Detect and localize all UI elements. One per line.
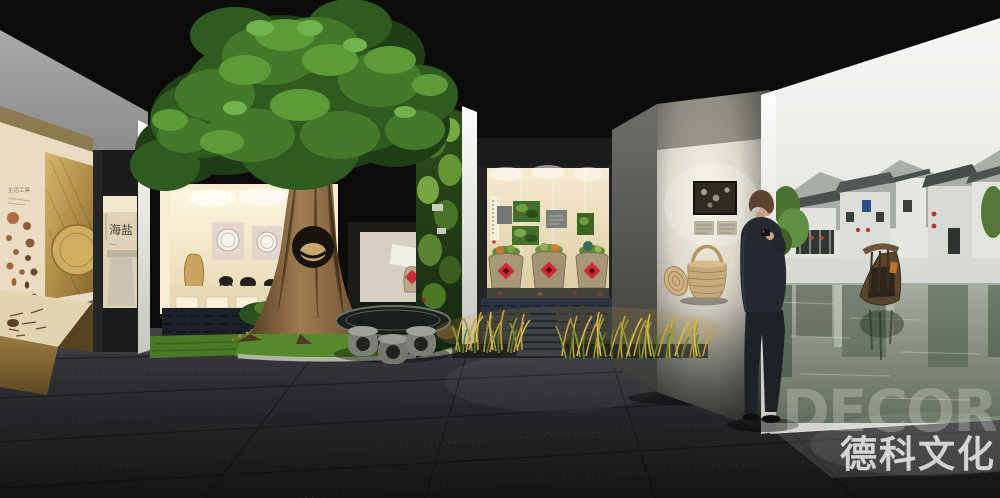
pedestal-cap bbox=[107, 250, 137, 257]
alcove-calligraphy: 海盐 bbox=[109, 222, 133, 237]
slab-artifact-blob bbox=[7, 319, 19, 327]
tall-clay-jar bbox=[184, 254, 203, 288]
camera bbox=[761, 229, 770, 236]
jar-shelf bbox=[487, 288, 609, 299]
basket-body bbox=[688, 264, 726, 298]
gray-text-panel-1 bbox=[497, 206, 512, 224]
photo-green-3 bbox=[577, 213, 594, 235]
photo-green-1 bbox=[513, 201, 540, 222]
green-wall-edge bbox=[462, 106, 477, 346]
scene-canvas: 生活工具 海盐 bbox=[0, 0, 1000, 498]
shoe-right bbox=[762, 415, 781, 423]
boat-reflection bbox=[860, 310, 904, 338]
jar-3 bbox=[576, 241, 608, 288]
photo-green-2 bbox=[512, 226, 539, 245]
left-panel-title: 生活工具 bbox=[8, 186, 31, 194]
stone-pedestal bbox=[107, 257, 135, 306]
stone-table-set bbox=[334, 306, 450, 364]
shoe-left bbox=[743, 413, 760, 421]
window-lintel bbox=[477, 138, 616, 166]
framed-photo bbox=[694, 182, 736, 214]
exhibition-render: 生活工具 海盐 bbox=[0, 0, 1000, 498]
dark-column bbox=[93, 150, 102, 352]
alcove-glow bbox=[103, 196, 137, 212]
rice-bed bbox=[435, 306, 725, 359]
jar-1 bbox=[489, 245, 523, 288]
jar-2 bbox=[532, 243, 566, 288]
storage-jars bbox=[489, 241, 608, 288]
gray-text-panel-2 bbox=[546, 210, 567, 228]
